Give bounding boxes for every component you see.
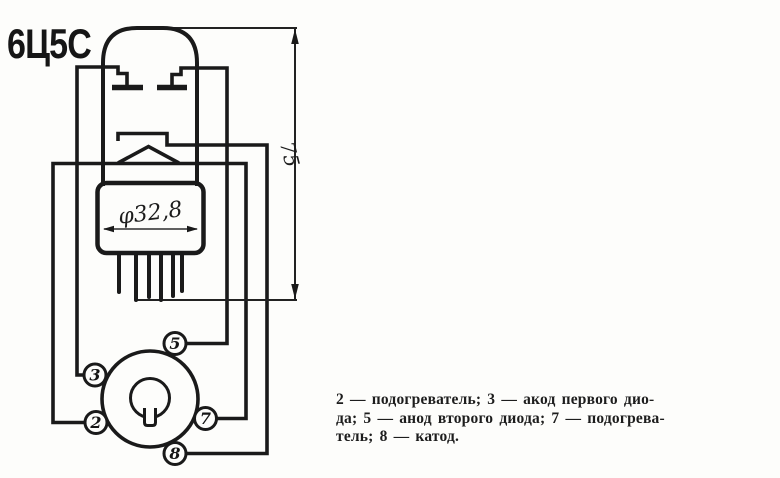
dimension-arrow-right — [187, 226, 198, 232]
pin-number-label: 8 — [168, 444, 180, 463]
socket-pin-8: 8 — [164, 443, 186, 465]
socket-key-notch — [145, 408, 156, 426]
dimension-arrow-left — [103, 226, 114, 232]
legend-line: тель; 8 — катод. — [336, 428, 780, 447]
pin-number-label: 2 — [89, 413, 101, 432]
tube-base-pins — [119, 253, 182, 300]
legend-line: 2 — подогреватель; 3 — акод первого дио- — [336, 391, 780, 410]
socket-pin-7: 7 — [195, 408, 217, 430]
dimension-arrow-up — [291, 29, 299, 44]
socket-outline — [102, 351, 198, 447]
dimension-diameter: φ32,8 — [103, 197, 198, 232]
dimension-arrow-down — [291, 284, 299, 299]
socket-pin-2: 2 — [85, 412, 107, 434]
pin-number-label: 5 — [169, 334, 180, 353]
heater-filament-chevron — [118, 147, 179, 164]
socket-pin-3: 3 — [84, 364, 106, 386]
diameter-dimension-label: φ32,8 — [117, 197, 184, 230]
tube-designation-label: 6Ц5С — [7, 20, 92, 67]
legend-line: да; 5 — анод второго диода; 7 — подогрев… — [336, 410, 780, 429]
height-dimension-label: 75 — [275, 139, 304, 170]
pin-number-label: 3 — [89, 366, 100, 385]
figure-vacuum-tube-6c5s: 75 φ32,8 — [0, 0, 780, 478]
socket-pinout: 5 3 2 7 8 — [84, 333, 217, 465]
pin-legend: 2 — подогреватель; 3 — акод первого дио-… — [336, 391, 780, 447]
pin-number-label: 7 — [200, 409, 211, 428]
socket-pin-5: 5 — [164, 333, 186, 355]
